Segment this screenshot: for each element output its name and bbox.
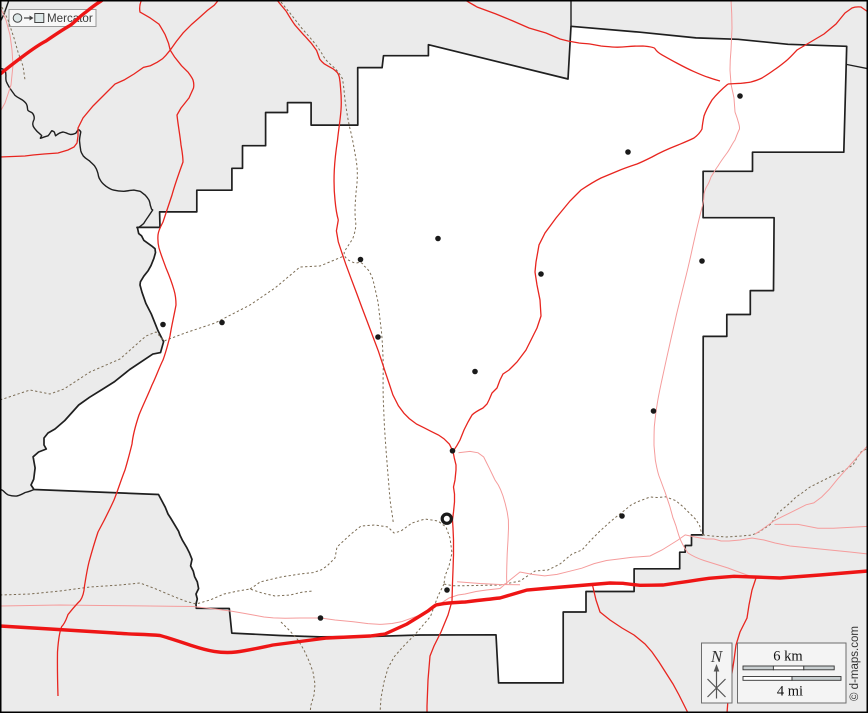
svg-text:© d-maps.com: © d-maps.com (849, 626, 861, 701)
svg-text:6 km: 6 km (773, 649, 803, 665)
svg-text:4 mi: 4 mi (777, 684, 803, 700)
svg-text:N: N (710, 647, 724, 666)
